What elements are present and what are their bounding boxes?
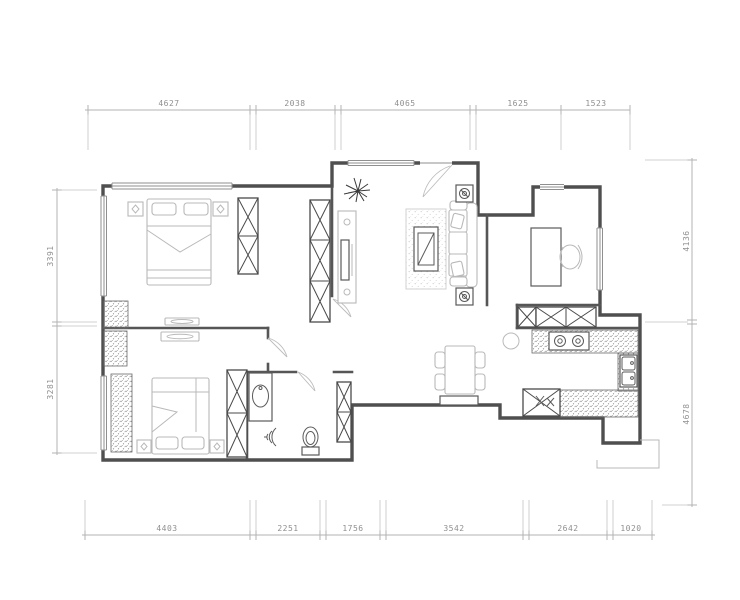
dimension-right: 4136 4678	[645, 158, 697, 507]
floor-plan-sheet: 4627 2038 4065 1625 1523 4403 2251 1756 …	[0, 0, 740, 600]
desk-chair	[560, 245, 582, 269]
side-table-lamp	[456, 288, 473, 305]
console-shelf	[165, 318, 199, 325]
nightstand	[210, 440, 224, 453]
master-bedroom	[128, 198, 330, 325]
kitchen	[503, 307, 638, 417]
wardrobe-icon	[227, 370, 247, 457]
desk	[531, 228, 561, 286]
bathroom	[249, 372, 351, 455]
dining-area	[435, 346, 485, 405]
dining-chair	[435, 374, 445, 390]
sideboard	[440, 396, 478, 405]
coffee-table	[414, 227, 438, 271]
pier-hatch-1	[104, 301, 128, 328]
pillow	[152, 203, 176, 215]
master-left-window	[100, 196, 107, 296]
dim-top-3: 4065	[394, 99, 415, 108]
bathroom-cabinet	[337, 382, 351, 442]
bed2	[152, 378, 209, 454]
nightstand	[137, 440, 151, 453]
sofa-pillow	[451, 261, 465, 277]
dim-bottom-3: 1756	[342, 524, 363, 533]
plant-icon	[344, 178, 370, 202]
side-table-lamp	[456, 185, 473, 202]
tv-cabinet	[338, 211, 356, 303]
dim-left-2: 3281	[46, 378, 55, 399]
shower-head-icon	[264, 428, 276, 446]
dim-bottom-4: 3542	[443, 524, 464, 533]
pillow	[184, 203, 208, 215]
nightstand	[128, 202, 143, 216]
second-bedroom	[137, 332, 247, 457]
master-bed	[147, 199, 211, 285]
dining-table	[445, 346, 475, 394]
entry-door	[420, 159, 452, 197]
dim-top-1: 4627	[158, 99, 179, 108]
kitchen-wall-cabinet	[518, 307, 596, 327]
living-top-window	[348, 160, 414, 167]
water-heater	[503, 333, 519, 349]
sofa	[449, 201, 477, 287]
wall-piers	[104, 301, 132, 452]
living-room	[338, 178, 477, 305]
dim-top-4: 1625	[507, 99, 528, 108]
study-room	[531, 228, 582, 286]
bathroom-door-swing	[298, 372, 315, 391]
dimension-bottom: 4403 2251 1756 3542 2642 1020	[82, 500, 655, 540]
floor-plan-canvas: 4627 2038 4065 1625 1523 4403 2251 1756 …	[0, 0, 740, 600]
dining-chair	[475, 374, 485, 390]
kitchen-sink	[620, 355, 637, 387]
pillow	[156, 437, 178, 449]
dimension-top: 4627 2038 4065 1625 1523	[85, 99, 630, 150]
bed2-door	[268, 338, 287, 357]
dim-right-2: 4678	[682, 403, 691, 424]
dim-bottom-5: 2642	[557, 524, 578, 533]
pier-hatch-3	[111, 374, 132, 452]
pier-hatch-2	[104, 331, 127, 366]
rug	[406, 209, 446, 289]
washbasin	[249, 373, 272, 421]
tv-shelf	[161, 332, 199, 341]
bed2-left-window	[100, 376, 107, 450]
dim-bottom-6: 1020	[620, 524, 641, 533]
study-top-window	[540, 184, 564, 191]
tv-icon	[341, 240, 349, 280]
master-top-window	[112, 182, 232, 190]
nightstand	[213, 202, 228, 216]
wardrobe-icon	[310, 200, 330, 322]
dim-right-1: 4136	[682, 230, 691, 251]
entry-door-swing	[423, 165, 452, 197]
dim-left-1: 3391	[46, 245, 55, 266]
dim-bottom-2: 2251	[277, 524, 298, 533]
dimension-left: 3391 3281	[46, 188, 97, 455]
refrigerator	[523, 389, 560, 416]
dining-chair	[475, 352, 485, 368]
dim-top-5: 1523	[585, 99, 606, 108]
dim-bottom-1: 4403	[156, 524, 177, 533]
toilet	[302, 427, 319, 455]
study-right-window	[596, 228, 604, 290]
pillow	[182, 437, 204, 449]
gas-stove	[549, 332, 589, 350]
dining-chair	[435, 352, 445, 368]
dim-top-2: 2038	[284, 99, 305, 108]
wardrobe-icon	[238, 198, 258, 274]
